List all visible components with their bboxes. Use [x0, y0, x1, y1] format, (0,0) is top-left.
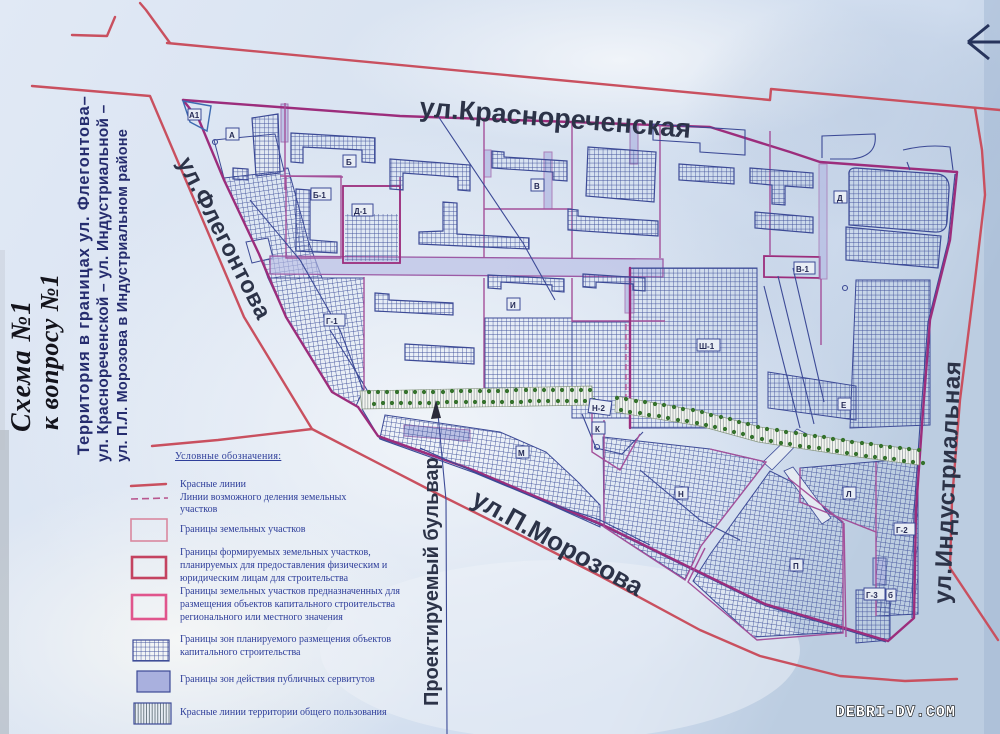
svg-text:Н-2: Н-2	[592, 404, 605, 413]
svg-text:регионального или местного зна: регионального или местного значения	[180, 612, 343, 623]
svg-text:Г-2: Г-2	[896, 526, 908, 535]
svg-text:Схема №1: Схема №1	[6, 300, 37, 432]
svg-text:ул. Краснореченской – ул. Инду: ул. Краснореченской – ул. Индустриальной…	[95, 104, 112, 462]
svg-text:планируемых для предоставления: планируемых для предоставления физически…	[180, 560, 388, 571]
svg-text:А1: А1	[189, 111, 200, 120]
svg-text:Условные обозначения:: Условные обозначения:	[175, 451, 281, 462]
svg-text:Красные линии: Красные линии	[180, 479, 247, 490]
svg-text:И: И	[510, 301, 516, 310]
svg-text:Красные линии территории общег: Красные линии территории общего пользова…	[180, 707, 387, 718]
svg-text:к вопросу №1: к вопросу №1	[35, 273, 64, 430]
svg-text:К: К	[595, 425, 600, 434]
svg-text:Г-3: Г-3	[866, 591, 878, 600]
svg-text:размещения объектов капитально: размещения объектов капитального строите…	[180, 599, 396, 610]
svg-text:Границы формируемых земельных: Границы формируемых земельных участков,	[180, 547, 371, 558]
svg-text:Д: Д	[837, 194, 843, 203]
svg-text:В-1: В-1	[796, 265, 809, 274]
svg-text:Н: Н	[678, 490, 684, 499]
svg-text:Границы земельных участков: Границы земельных участков	[180, 524, 306, 535]
svg-text:Линии возможного деления земел: Линии возможного деления земельных	[180, 492, 346, 503]
svg-text:П: П	[793, 562, 799, 571]
svg-text:б: б	[888, 591, 893, 600]
svg-text:Б: Б	[346, 158, 352, 167]
svg-text:DEBRI-DV.COM: DEBRI-DV.COM	[836, 705, 956, 721]
svg-text:Ш-1: Ш-1	[699, 342, 715, 351]
svg-text:Границы земельных участков пре: Границы земельных участков предназначенн…	[180, 586, 400, 597]
svg-text:А: А	[229, 131, 235, 140]
svg-text:Д-1: Д-1	[354, 207, 367, 216]
svg-text:Границы зон действия публичных: Границы зон действия публичных сервитуто…	[180, 674, 375, 685]
svg-text:ул. П.Л. Морозова в Индустриал: ул. П.Л. Морозова в Индустриальном район…	[115, 129, 131, 462]
svg-text:Л: Л	[846, 490, 852, 499]
svg-text:Территория в границах ул. Флег: Территория в границах ул. Флегонтова–	[75, 95, 93, 455]
svg-text:участков: участков	[180, 504, 218, 515]
svg-text:капитального строительства: капитального строительства	[180, 647, 301, 658]
svg-text:Границы зон планируемого разме: Границы зон планируемого размещения объе…	[180, 634, 391, 645]
svg-text:Е: Е	[841, 401, 847, 410]
svg-text:В: В	[534, 182, 540, 191]
svg-text:Проектируемый бульвар: Проектируемый бульвар	[421, 457, 443, 706]
svg-text:юридическим лицам для строител: юридическим лицам для строительства	[180, 573, 349, 584]
svg-text:Б-1: Б-1	[313, 191, 326, 200]
svg-text:М: М	[518, 449, 525, 458]
svg-text:Г-1: Г-1	[326, 317, 338, 326]
